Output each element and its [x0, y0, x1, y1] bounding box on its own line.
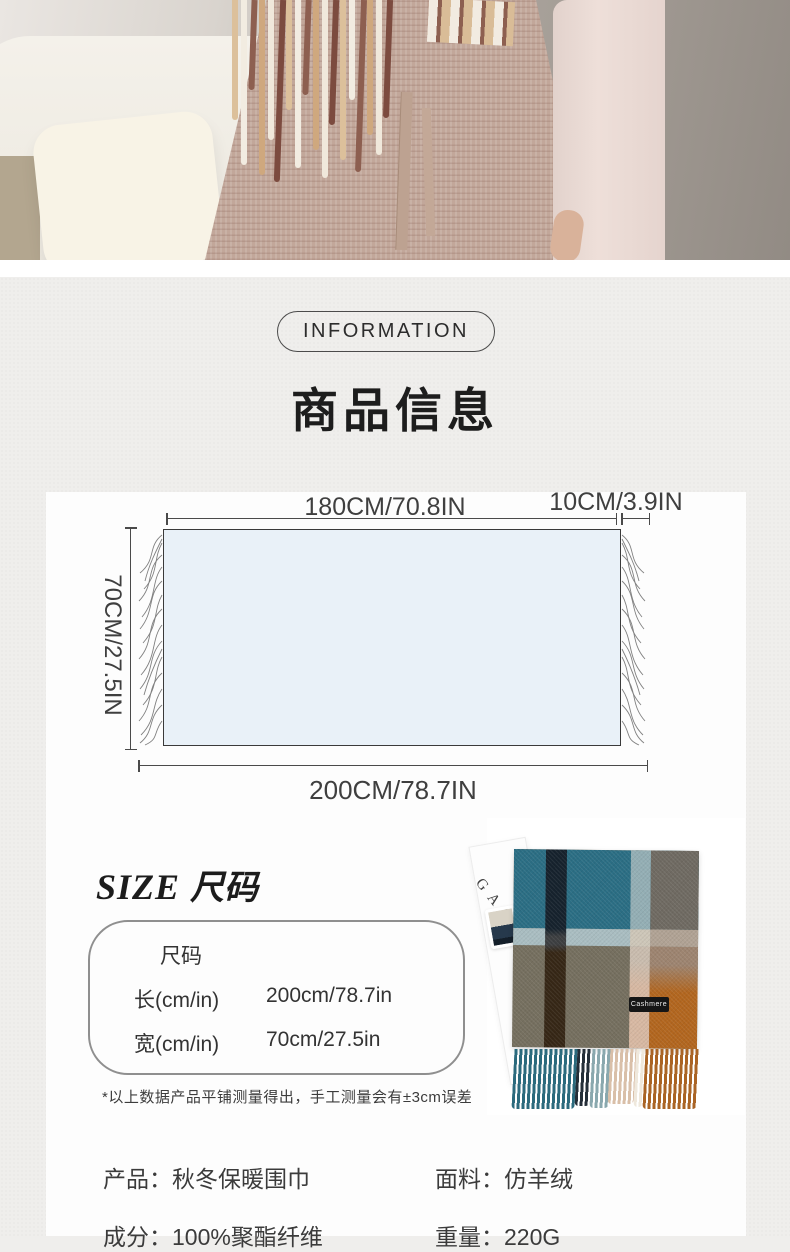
- scarf-brand-tag: Cashmere: [629, 997, 669, 1012]
- dim-label-total-length: 200CM/78.7IN: [138, 775, 648, 806]
- tassel-strand: [349, 0, 355, 100]
- tassel-strand: [274, 0, 286, 182]
- tassel-strand: [241, 0, 247, 165]
- diagram-tassels-left: [135, 529, 163, 746]
- tassel-segment-orange: [643, 1049, 700, 1109]
- attribute-fabric: 面料：仿羊绒: [435, 1160, 573, 1194]
- dim-line-height: [130, 527, 131, 750]
- attribute-weight: 重量：220G: [435, 1218, 560, 1252]
- tassel-strand: [313, 0, 319, 150]
- tassel-strand: [268, 0, 274, 140]
- tassel-strand: [322, 0, 328, 178]
- tassel-strand: [295, 0, 301, 168]
- sofa-pillow: [31, 109, 226, 260]
- dim-line-body-width: [166, 518, 617, 519]
- measurement-note: *以上数据产品平铺测量得出，手工测量会有±3cm误差: [102, 1086, 472, 1107]
- tassel-strand: [286, 0, 292, 110]
- photo-scarf-tassels: [513, 1049, 698, 1111]
- attribute-product: 产品：秋冬保暖围巾: [103, 1160, 310, 1194]
- size-table: 尺码 长(cm/in) 200cm/78.7in 宽(cm/in) 70cm/2…: [88, 920, 465, 1075]
- diagram-scarf-body: [163, 529, 621, 746]
- tassel-strand: [329, 0, 339, 125]
- tassel-strand: [367, 0, 373, 135]
- attribute-composition: 成分：100%聚酯纤维: [103, 1218, 323, 1252]
- tassel-strand: [302, 0, 311, 95]
- size-row-label: 宽(cm/in): [134, 1028, 266, 1058]
- tassel-strand: [376, 0, 382, 155]
- section-divider: [0, 260, 790, 277]
- tassel-strand: [383, 0, 393, 118]
- hero-scarf-tassels: [232, 0, 522, 200]
- information-badge: INFORMATION: [277, 311, 495, 352]
- weave-texture: [512, 849, 699, 1049]
- size-heading: SIZE尺码: [96, 860, 258, 909]
- tassel-segment-teal: [511, 1049, 577, 1109]
- dim-label-height: 70CM/27.5IN: [100, 560, 126, 730]
- size-heading-cn: 尺码: [190, 869, 258, 907]
- tassel-segment-cream: [608, 1049, 637, 1104]
- tassel-strand: [259, 0, 265, 175]
- dim-line-tassel-width: [621, 518, 650, 519]
- product-photo: GAR Cashmere: [487, 818, 745, 1115]
- hero-photo: [0, 0, 790, 260]
- size-row-width: 宽(cm/in) 70cm/27.5in: [90, 1028, 463, 1058]
- tassel-strand: [340, 0, 346, 160]
- section-title: 商品信息: [0, 372, 790, 441]
- size-row-length: 长(cm/in) 200cm/78.7in: [90, 984, 463, 1014]
- size-table-header: 尺码: [160, 940, 463, 970]
- floor-patch: [0, 156, 40, 260]
- tassel-strand: [232, 0, 238, 120]
- size-row-value: 200cm/78.7in: [266, 984, 392, 1014]
- diagram-tassels-right: [621, 529, 649, 746]
- size-row-label: 长(cm/in): [134, 984, 266, 1014]
- dim-line-total-length: [138, 765, 648, 766]
- size-heading-en: SIZE: [96, 867, 180, 907]
- tassel-strand: [248, 0, 257, 90]
- info-card: 180CM/70.8IN 10CM/3.9IN 70CM/27.5IN: [46, 492, 746, 1236]
- size-row-value: 70cm/27.5in: [266, 1028, 380, 1058]
- tassel-strand: [355, 0, 367, 172]
- plaid-scarf-image: [512, 849, 699, 1049]
